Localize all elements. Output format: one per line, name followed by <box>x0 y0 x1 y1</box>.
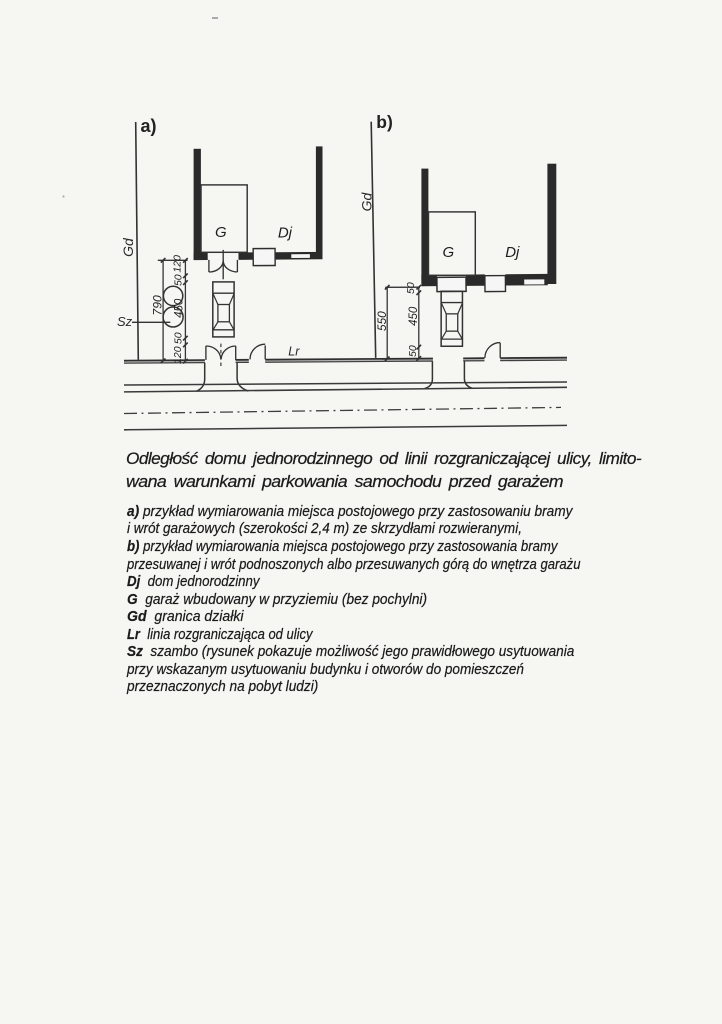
svg-text:50: 50 <box>407 345 419 357</box>
svg-text:790: 790 <box>151 295 165 316</box>
svg-text:b): b) <box>376 112 393 132</box>
svg-text:50: 50 <box>172 332 184 344</box>
svg-text:120: 120 <box>172 255 184 273</box>
svg-text:120: 120 <box>172 346 184 364</box>
svg-text:50: 50 <box>405 282 417 294</box>
svg-text:Lr: Lr <box>288 345 300 359</box>
svg-text:Dj: Dj <box>278 224 293 241</box>
svg-text:G: G <box>442 244 454 261</box>
svg-text:Dj: Dj <box>505 244 520 261</box>
svg-text:G: G <box>215 224 227 241</box>
svg-text:a): a) <box>141 116 157 136</box>
svg-text:Sz: Sz <box>117 314 133 329</box>
svg-text:Gd: Gd <box>120 237 136 257</box>
svg-text:Gd: Gd <box>358 191 374 211</box>
svg-text:450: 450 <box>173 298 185 318</box>
svg-text:50: 50 <box>172 274 184 286</box>
svg-text:450: 450 <box>408 306 420 326</box>
svg-text:550: 550 <box>375 311 389 331</box>
